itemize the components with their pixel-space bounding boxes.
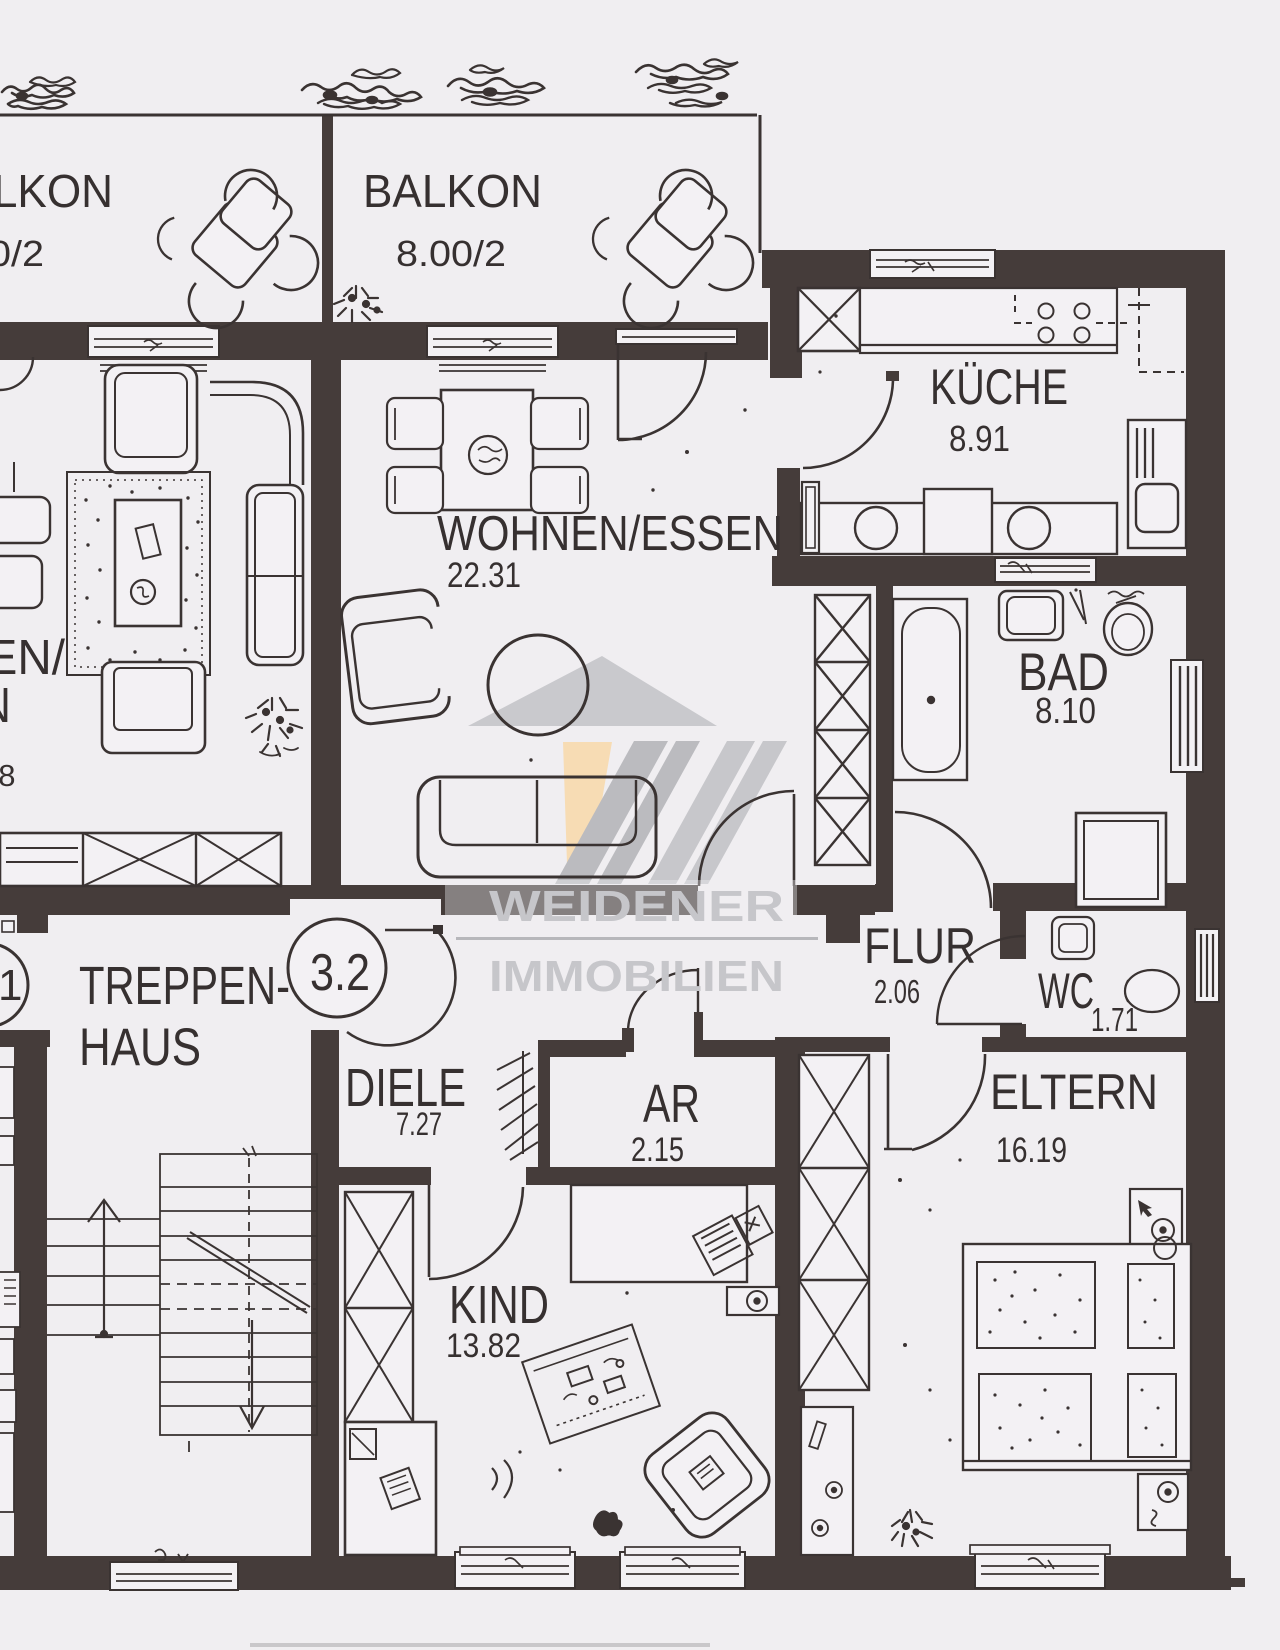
svg-text:2.06: 2.06 bbox=[874, 973, 920, 1010]
svg-text:BALKON: BALKON bbox=[363, 165, 542, 217]
svg-text:8.00/2: 8.00/2 bbox=[0, 233, 44, 274]
svg-text:3.2: 3.2 bbox=[310, 944, 370, 1002]
svg-text:16.19: 16.19 bbox=[996, 1131, 1067, 1170]
svg-text:8.00/2: 8.00/2 bbox=[396, 233, 506, 274]
svg-text:38: 38 bbox=[0, 758, 15, 793]
svg-text:WEIDENER: WEIDENER bbox=[489, 882, 784, 931]
svg-text:8.10: 8.10 bbox=[1035, 690, 1096, 731]
svg-text:1.71: 1.71 bbox=[1091, 1001, 1138, 1038]
svg-text:BALKON: BALKON bbox=[0, 165, 113, 217]
svg-text:KÜCHE: KÜCHE bbox=[930, 359, 1068, 415]
svg-text:WOHNEN/: WOHNEN/ bbox=[0, 631, 65, 685]
svg-text:7.27: 7.27 bbox=[396, 1106, 442, 1142]
svg-text:13.82: 13.82 bbox=[446, 1327, 521, 1365]
svg-text:FLUR: FLUR bbox=[864, 918, 976, 974]
svg-text:1: 1 bbox=[0, 961, 22, 1010]
svg-text:TREPPEN-: TREPPEN- bbox=[79, 956, 290, 1016]
svg-text:KIND: KIND bbox=[449, 1275, 549, 1335]
svg-text:8.91: 8.91 bbox=[949, 418, 1010, 459]
svg-text:WC: WC bbox=[1038, 963, 1094, 1019]
svg-text:2.15: 2.15 bbox=[631, 1131, 684, 1169]
svg-text:IMMOBILIEN: IMMOBILIEN bbox=[489, 952, 784, 1001]
svg-text:22.31: 22.31 bbox=[447, 556, 521, 595]
svg-text:ESSEN: ESSEN bbox=[0, 679, 11, 733]
svg-text:ELTERN: ELTERN bbox=[990, 1064, 1158, 1120]
svg-text:WOHNEN/ESSEN: WOHNEN/ESSEN bbox=[437, 507, 783, 561]
svg-text:AR: AR bbox=[643, 1074, 700, 1134]
svg-text:HAUS: HAUS bbox=[79, 1018, 201, 1077]
